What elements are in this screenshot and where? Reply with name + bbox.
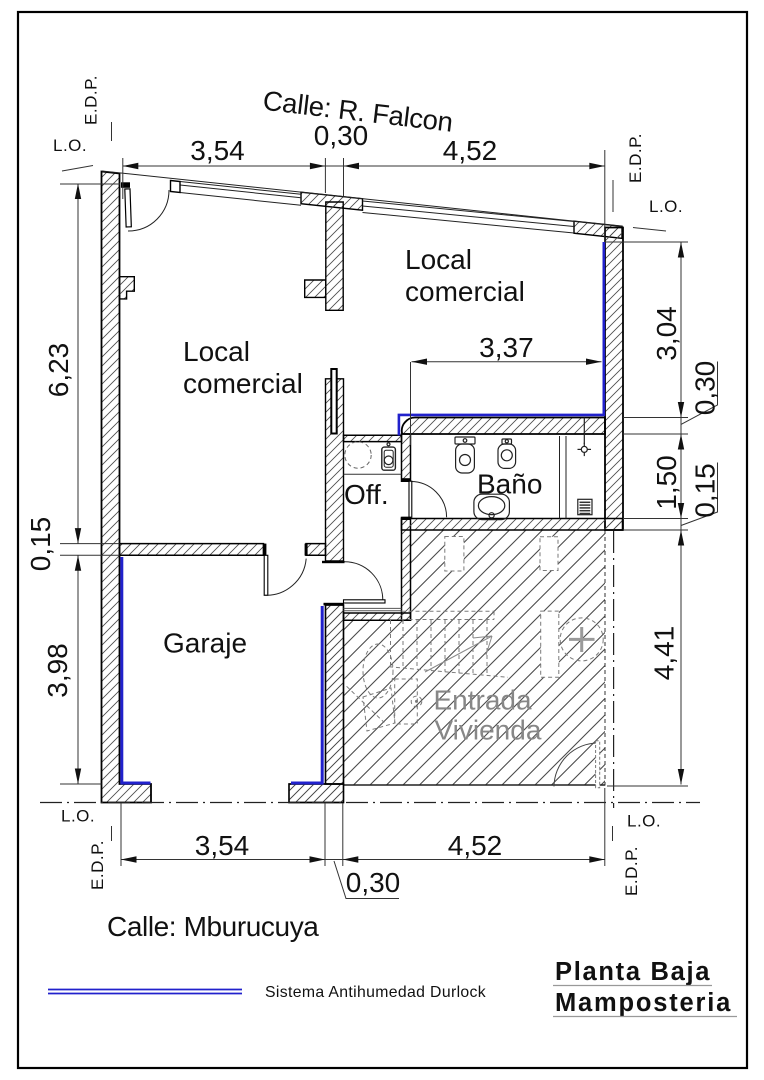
svg-text:comercial: comercial	[183, 368, 303, 399]
svg-text:Mamposteria: Mamposteria	[555, 989, 732, 1017]
svg-text:Planta Baja: Planta Baja	[555, 958, 711, 986]
svg-text:E.D.P.: E.D.P.	[622, 846, 641, 896]
svg-text:Baño: Baño	[477, 469, 542, 500]
svg-text:0,30: 0,30	[314, 120, 369, 151]
svg-text:4,52: 4,52	[443, 135, 498, 166]
svg-text:L.O.: L.O.	[61, 807, 95, 826]
svg-text:Garaje: Garaje	[163, 628, 247, 659]
svg-text:L.O.: L.O.	[627, 812, 661, 831]
svg-text:E.D.P.: E.D.P.	[88, 840, 107, 890]
svg-text:3,54: 3,54	[195, 830, 250, 861]
svg-text:Local: Local	[405, 244, 472, 275]
svg-text:6,23: 6,23	[43, 343, 74, 398]
svg-text:comercial: comercial	[405, 276, 525, 307]
svg-text:Calle: Mburucuya: Calle: Mburucuya	[107, 911, 319, 942]
svg-text:Sistema Antihumedad Durlock: Sistema Antihumedad Durlock	[265, 984, 486, 1001]
svg-text:E.D.P.: E.D.P.	[82, 75, 101, 125]
svg-text:Entrada: Entrada	[434, 685, 532, 716]
svg-text:E.D.P.: E.D.P.	[626, 133, 645, 183]
svg-text:3,98: 3,98	[42, 643, 73, 698]
svg-text:Local: Local	[183, 336, 250, 367]
svg-text:4,52: 4,52	[448, 830, 503, 861]
svg-text:0,30: 0,30	[690, 361, 721, 416]
svg-text:Off.: Off.	[344, 479, 389, 510]
svg-text:0,15: 0,15	[25, 517, 56, 572]
svg-text:3,37: 3,37	[479, 332, 534, 363]
svg-text:1,50: 1,50	[651, 455, 682, 510]
svg-text:4,41: 4,41	[649, 626, 680, 681]
svg-text:0,30: 0,30	[346, 867, 401, 898]
svg-text:L.O.: L.O.	[649, 197, 683, 216]
svg-text:L.O.: L.O.	[53, 136, 87, 155]
svg-text:Vivienda: Vivienda	[435, 715, 542, 746]
svg-text:3,04: 3,04	[651, 306, 682, 361]
svg-text:0,15: 0,15	[690, 463, 721, 518]
svg-text:3,54: 3,54	[190, 135, 245, 166]
